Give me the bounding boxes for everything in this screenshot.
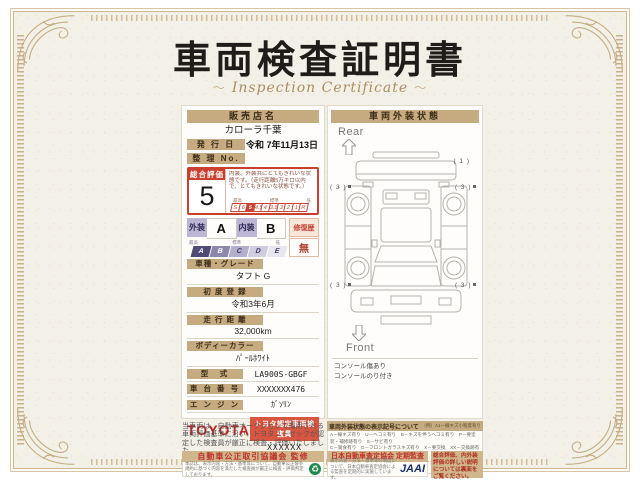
corner-flourish-icon	[14, 404, 78, 468]
damage-marker: ( 3 )	[330, 184, 351, 191]
notes-divider	[332, 358, 478, 359]
rear-label: Rear	[338, 126, 364, 138]
subtitle-ornament: ～	[414, 81, 427, 95]
rating-scale: S 6 5 4.5 4 3.5 3 2 1 R	[229, 203, 315, 212]
jaai-audit-body: 表示内容・方法・基準等の制度について、日本自動車査定協会による監査を定期的に実施…	[327, 462, 428, 477]
rating-description: 内装、外装共にとてもきれいな状態です。（走行距離5万キロ以内で、とてもきれいな状…	[229, 171, 315, 198]
interior-grade-label: 内装	[237, 218, 257, 237]
grade-scale-mid: 標準	[232, 240, 241, 245]
arrow-down-icon	[352, 325, 366, 341]
inspection-statement: 当車両は、自動車オークションで運用される車両評価基準に沿い、トヨタユーゼックが認…	[182, 423, 324, 449]
damage-marker-text: ( 3 )	[455, 184, 472, 191]
legend-example: （例）A1ー線キズ小程度有り	[421, 423, 481, 429]
damage-marker: ( 3 )	[455, 184, 476, 191]
field-label: 走 行 距 離	[187, 315, 263, 325]
green-certification-icon: ♻	[309, 463, 321, 475]
grade-scale-cell: C	[229, 246, 250, 257]
exterior-condition-panel: 車両外装状態 Rear	[327, 105, 483, 419]
exterior-grade-value: A	[207, 218, 237, 239]
legend-title: 車両外装状態の表示記号について	[329, 422, 419, 431]
grade-row: 外装 A 内装 B	[187, 218, 286, 239]
grade-scale-wrap: 最高 標準 低 A B C D E	[187, 240, 286, 257]
field-value: XXXXXXX476	[243, 385, 319, 394]
grade-section: 外装 A 内装 B 最高 標準 低 A B C D	[187, 218, 319, 257]
grade-scale: A B C D E	[187, 246, 286, 257]
damage-marker-square-icon	[473, 185, 477, 189]
vehicle-info-panel: 販売店名 カローラ千葉 発 行 日 令和 7年11月13日 整 理 No. 総合…	[181, 105, 325, 419]
legend-header: 車両外装状態の表示記号について （例）A1ー線キズ小程度有り	[327, 421, 483, 431]
field-body-color: ボディーカラー ﾊﾟｰﾙﾎﾜｲﾄ	[187, 341, 319, 367]
car-expanded-diagram	[339, 150, 473, 328]
dealer-header: 販売店名	[187, 110, 319, 123]
note-line: コンソール傷あり	[334, 362, 393, 372]
repair-history-value: 無	[289, 238, 319, 257]
damage-marker-square-icon	[348, 283, 352, 287]
jaai-audit-text: 表示内容・方法・基準等の制度について、日本自動車査定協会による監査を定期的に実施…	[330, 458, 398, 480]
issue-date-value: 令和 7年11月13日	[245, 138, 319, 151]
damage-marker-text: ( 3 )	[330, 282, 347, 289]
condition-notes: コンソール傷あり コンソールのり付き	[334, 362, 393, 382]
field-engine: エ ン ジ ン ｶﾞｿﾘﾝ	[187, 399, 319, 413]
legend-line: A－線キズ有り U－ヘコミ有り B－キズを伴うヘコミ有り P－要塗装・補修跡有り…	[330, 432, 480, 445]
field-value: LA900S-GBGF	[243, 370, 319, 379]
grade-scale-cell: A	[191, 246, 212, 257]
grade-main: 外装 A 内装 B 最高 標準 低 A B C D	[187, 218, 286, 257]
dealer-name: カローラ千葉	[187, 125, 319, 136]
rating-scale-cell: R	[298, 203, 309, 212]
field-value: ｶﾞｿﾘﾝ	[243, 399, 319, 410]
field-value: 令和3年6月	[187, 297, 319, 313]
field-mileage: 走 行 距 離 32,000km	[187, 315, 319, 339]
grade-scale-low: 低	[276, 240, 281, 245]
repair-history-column: 修復歴 無	[289, 218, 319, 257]
field-label: 初 度 登 録	[187, 287, 263, 297]
field-label: エ ン ジ ン	[187, 400, 243, 410]
damage-marker-square-icon	[348, 185, 352, 189]
overall-rating-score: 5	[189, 180, 225, 213]
grade-scale-high: 最高	[189, 240, 198, 245]
ref-no-label: 整 理 No.	[187, 153, 245, 164]
field-first-registration: 初 度 登 録 令和3年6月	[187, 287, 319, 313]
fair-trade-council-text: 本誌は、表示内容・方法・基準等について、自動車公正競争規約に基づく内容を満たした…	[185, 461, 307, 478]
overall-rating-detail: 内装、外装共にとてもきれいな状態です。（走行距離5万キロ以内で、とてもきれいな状…	[226, 169, 317, 213]
damage-marker-text: ( 3 )	[330, 184, 347, 191]
exterior-grade-label: 外装	[187, 218, 207, 237]
overall-rating-box: 総合評価 5 内装、外装共にとてもきれいな状態です。（走行距離5万キロ以内で、と…	[187, 167, 319, 215]
page-title: 車両検査証明書	[11, 29, 629, 84]
certificate-frame: 車両検査証明書 ～Inspection Certificate～ 販売店名 カロ…	[10, 8, 630, 472]
interior-grade-value: B	[257, 218, 287, 239]
damage-marker-square-icon	[473, 283, 477, 287]
damage-marker: ( 1 )	[453, 158, 470, 165]
jaai-audit-box: 日本自動車査定協会 定期監査 表示内容・方法・基準等の制度について、日本自動車査…	[327, 451, 428, 477]
subtitle-ornament: ～	[213, 81, 226, 95]
field-label: ボディーカラー	[187, 341, 263, 351]
grade-scale-cell: D	[248, 246, 269, 257]
note-line: コンソールのり付き	[334, 372, 393, 382]
damage-marker-text: ( 3 )	[455, 282, 472, 289]
ref-no-row: 整 理 No.	[187, 153, 319, 164]
overall-rating-label: 総合評価	[189, 169, 225, 180]
issue-date-label: 発 行 日	[187, 139, 245, 150]
field-value: タフト G	[187, 269, 319, 285]
front-label: Front	[346, 342, 374, 354]
exterior-condition-header: 車両外装状態	[331, 110, 479, 123]
issue-date-row: 発 行 日 令和 7年11月13日	[187, 138, 319, 151]
fair-trade-council-box: 自動車公正取引協議会 監修 本誌は、表示内容・方法・基準等について、自動車公正競…	[182, 451, 324, 477]
field-model-code: 型 式 LA900S-GBGF	[187, 369, 319, 382]
field-value: ﾊﾟｰﾙﾎﾜｲﾄ	[187, 351, 319, 367]
damage-marker-text: ( 1 )	[453, 158, 470, 165]
fair-trade-council-body: 本誌は、表示内容・方法・基準等について、自動車公正競争規約に基づく内容を満たした…	[182, 462, 324, 477]
field-chassis-number: 車 台 番 号 XXXXXXX476	[187, 384, 319, 397]
field-model-grade: 車種・グレード タフト G	[187, 259, 319, 285]
subtitle-text: Inspection Certificate	[232, 80, 408, 96]
page-subtitle: ～Inspection Certificate～	[11, 79, 629, 96]
field-value: 32,000km	[187, 325, 319, 339]
see-reverse-note: 総合評価、内外装評価の詳しい説明については裏面をご覧ください。	[431, 451, 483, 478]
overall-rating-score-cell: 総合評価 5	[189, 169, 226, 213]
jaai-logo: JAAI	[400, 463, 425, 475]
damage-marker: ( 3 )	[330, 282, 351, 289]
frame-hatch-top	[91, 15, 549, 21]
corner-flourish-icon	[562, 404, 626, 468]
frame-hatch-right	[616, 35, 623, 445]
grade-scale-labels: 最高 標準 低	[189, 240, 280, 245]
damage-marker: ( 3 )	[455, 282, 476, 289]
field-label: 型 式	[187, 369, 243, 379]
grade-scale-cell: B	[210, 246, 231, 257]
grade-scale-cell: E	[267, 246, 288, 257]
field-label: 車 台 番 号	[187, 384, 243, 394]
repair-history-label: 修復歴	[289, 218, 319, 237]
field-label: 車種・グレード	[187, 259, 263, 269]
frame-hatch-left	[17, 35, 24, 445]
